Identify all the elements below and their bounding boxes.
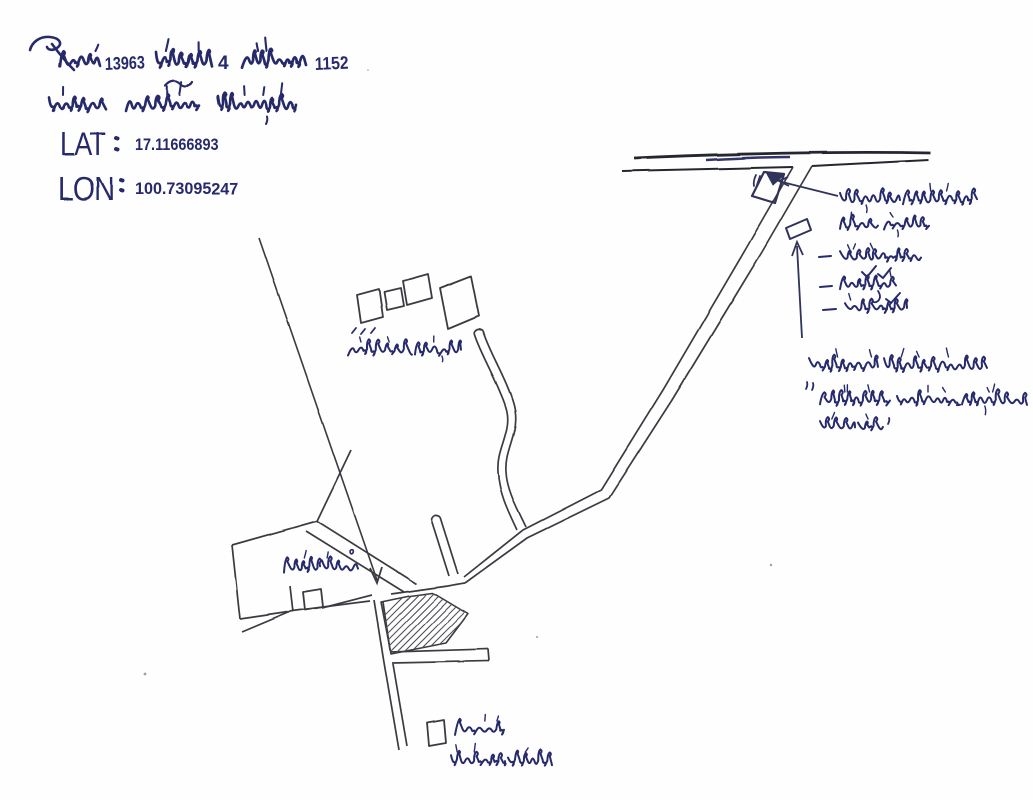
svg-text:LON: LON <box>58 170 114 208</box>
svg-text:LAT: LAT <box>60 127 106 163</box>
svg-text:100.73095247: 100.73095247 <box>135 179 238 198</box>
svg-text:13963: 13963 <box>105 53 146 75</box>
svg-text:1152: 1152 <box>315 52 349 74</box>
svg-text:4: 4 <box>218 53 229 74</box>
svg-text:17.11666893: 17.11666893 <box>135 136 219 154</box>
